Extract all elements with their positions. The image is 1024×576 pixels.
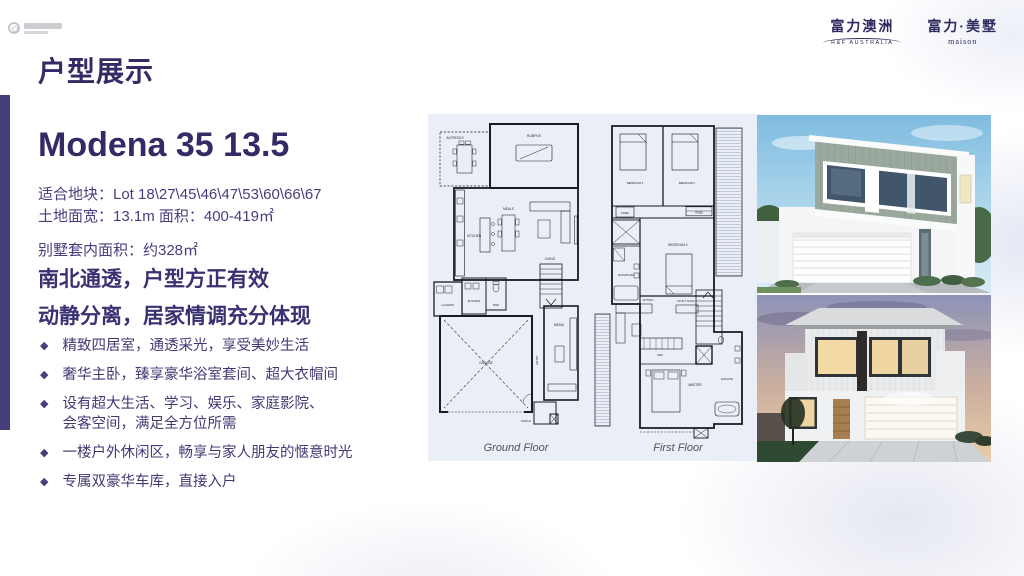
svg-text:ENTRY: ENTRY [535,355,539,364]
watermark-logo [8,22,62,34]
svg-text:ALFRESCO: ALFRESCO [446,136,464,140]
ground-floor-plan: ALFRESCO RUMPUS KITCHEN MEALS LIVING LAU… [432,118,588,440]
list-item: ◆ 一楼户外休闲区，畅享与家人朋友的惬意时光 [40,443,430,463]
list-item: ◆ 奢华主卧，臻享豪华浴室套间、超大衣帽间 [40,365,430,385]
svg-text:SITTING: SITTING [643,298,654,302]
spec-lots: 适合地块：Lot 18\27\45\46\47\53\60\66\67 [38,183,322,204]
diamond-bullet-icon: ◆ [40,472,48,492]
diamond-bullet-icon: ◆ [40,365,48,385]
svg-text:BATHROOM: BATHROOM [618,273,634,277]
first-floor-label: First Floor [608,442,748,454]
maison-logo-en: maison [948,37,977,46]
list-item: ◆ 设有超大生活、学习、娱乐、家庭影院、 会客空间，满足全方位所需 [40,394,430,434]
first-floor-plan: BEDROOM 3 BEDROOM 2 ROBE ROBE BEDROOM 4 … [594,118,750,440]
header-logos: 富力澳洲 R&F AUSTRALIA 富力·美墅 maison [823,16,998,46]
bullet-text: 奢华主卧，臻享豪华浴室套间、超大衣帽间 [62,365,338,385]
floorplan-panel: ALFRESCO RUMPUS KITCHEN MEALS LIVING LAU… [428,114,761,461]
bullet-text: 专属双豪华车库，直接入户 [62,472,236,492]
list-item: ◆ 精致四居室，通透采光，享受美妙生活 [40,336,430,356]
bullet-text: 一楼户外休闲区，畅享与家人朋友的惬意时光 [62,443,352,463]
svg-text:ROBE: ROBE [621,211,629,215]
svg-text:RUMPUS: RUMPUS [527,134,541,138]
svg-text:PWD: PWD [493,303,499,307]
list-item: ◆ 专属双豪华车库，直接入户 [40,472,430,492]
maison-logo: 富力·美墅 maison [927,16,998,46]
headline-zoning: 动静分离，居家情调充分体现 [38,300,311,330]
bullet-text: 精致四居室，通透采光，享受美妙生活 [62,336,309,356]
house-render-dusk-photo [757,295,991,462]
watermark-text-blur [24,23,62,34]
svg-text:BEDROOM 3: BEDROOM 3 [627,181,644,185]
svg-text:LAUNDRY: LAUNDRY [442,303,455,307]
rf-logo-cn: 富力澳洲 [830,16,894,36]
svg-text:LIVING: LIVING [545,257,556,261]
bullet-text: 设有超大生活、学习、娱乐、家庭影院、 会客空间，满足全方位所需 [62,394,323,434]
rf-logo-en: R&F AUSTRALIA [831,40,893,46]
watermark-circle-icon [8,22,20,34]
spec-frontage-area: 土地面宽：13.1m 面积：400-419㎡ [38,205,274,226]
rf-australia-logo: 富力澳洲 R&F AUSTRALIA [823,16,901,46]
svg-text:BEDROOM 2: BEDROOM 2 [679,181,696,185]
headline-orientation: 南北通透，户型方正有效 [38,263,269,293]
svg-text:ENSUITE: ENSUITE [721,377,733,381]
diamond-bullet-icon: ◆ [40,336,48,356]
svg-text:KITCHEN: KITCHEN [467,234,482,238]
ground-floor-label: Ground Floor [446,442,586,454]
svg-text:ROBE: ROBE [695,211,703,215]
svg-text:MASTER: MASTER [688,383,702,387]
feature-bullet-list: ◆ 精致四居室，通透采光，享受美妙生活 ◆ 奢华主卧，臻享豪华浴室套间、超大衣帽… [40,336,430,501]
svg-text:MEALS: MEALS [503,207,514,211]
svg-text:BEDROOM 4: BEDROOM 4 [668,243,687,247]
model-name: Modena 35 13.5 [38,126,289,165]
svg-text:GARAGE: GARAGE [479,361,493,365]
spec-internal-area: 别墅套内面积：约328㎡ [38,239,198,260]
slide: 富力澳洲 R&F AUSTRALIA 富力·美墅 maison 户型展示 Mod… [0,0,1024,576]
diamond-bullet-icon: ◆ [40,443,48,463]
page-title: 户型展示 [38,50,154,90]
diamond-bullet-icon: ◆ [40,394,48,414]
svg-text:WIR: WIR [657,353,662,357]
house-render-day-photo [757,115,991,293]
svg-text:STUDY NOOK: STUDY NOOK [677,299,695,303]
svg-text:BUTLERS: BUTLERS [468,299,481,303]
accent-bar [0,95,10,430]
svg-text:PORCH: PORCH [521,419,531,423]
maison-logo-cn: 富力·美墅 [927,16,998,36]
svg-text:MEDIA: MEDIA [554,323,565,327]
